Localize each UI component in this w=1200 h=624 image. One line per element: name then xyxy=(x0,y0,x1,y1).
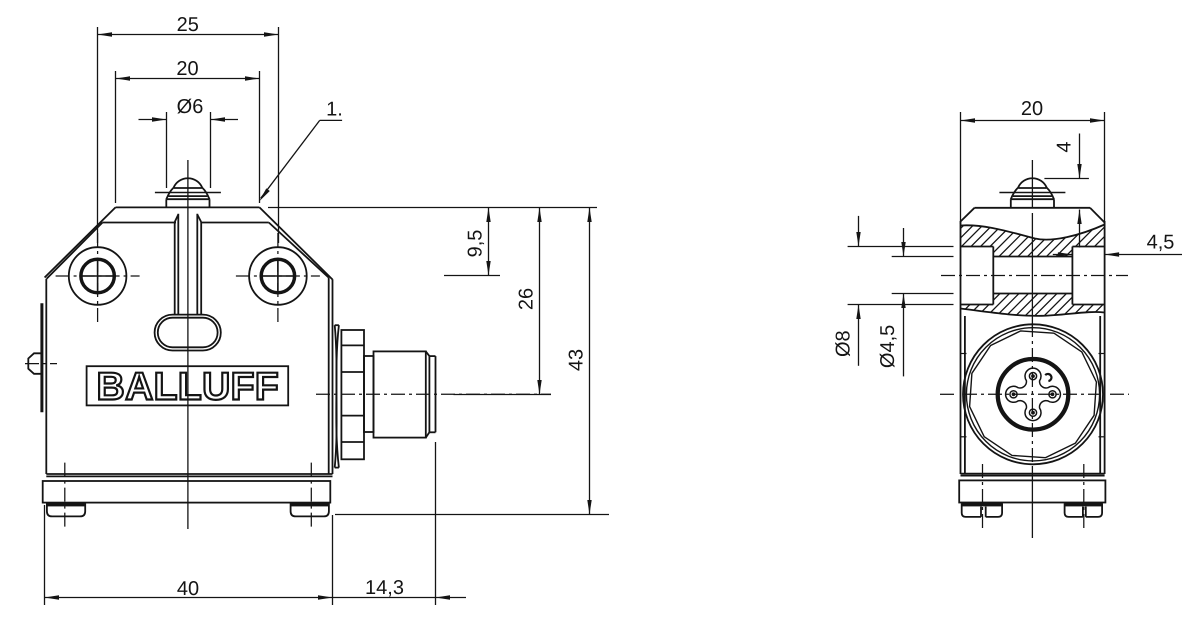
svg-text:4: 4 xyxy=(1054,141,1076,152)
svg-text:43: 43 xyxy=(566,349,588,371)
svg-text:40: 40 xyxy=(177,578,199,600)
svg-text:1.: 1. xyxy=(326,99,343,121)
svg-text:26: 26 xyxy=(516,288,538,310)
svg-text:20: 20 xyxy=(1021,98,1043,120)
svg-text:14,3: 14,3 xyxy=(365,577,404,599)
svg-text:Ø8: Ø8 xyxy=(833,330,855,357)
svg-text:4,5: 4,5 xyxy=(1147,232,1175,254)
svg-text:20: 20 xyxy=(176,58,198,80)
svg-text:Ø6: Ø6 xyxy=(177,96,204,118)
svg-text:9,5: 9,5 xyxy=(465,230,487,258)
svg-text:25: 25 xyxy=(177,14,199,36)
svg-text:Ø4,5: Ø4,5 xyxy=(877,325,899,368)
